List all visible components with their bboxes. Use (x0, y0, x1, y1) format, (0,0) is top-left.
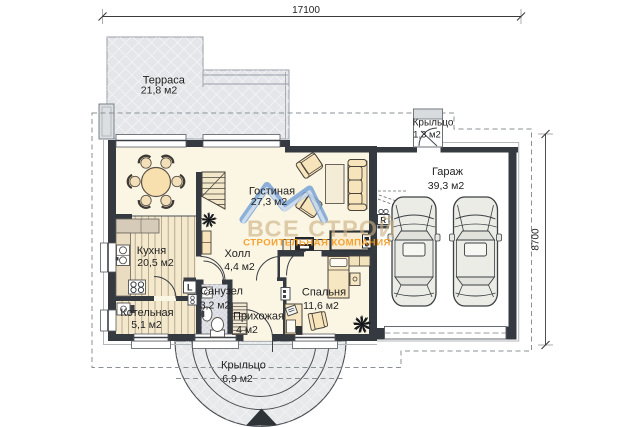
svg-text:Крыльцо: Крыльцо (413, 118, 454, 129)
svg-text:27,3 м2: 27,3 м2 (251, 196, 288, 208)
svg-text:20,5 м2: 20,5 м2 (137, 257, 174, 269)
svg-text:8700: 8700 (531, 228, 542, 251)
svg-text:Прихожая: Прихожая (233, 311, 284, 323)
svg-text:Холл: Холл (225, 248, 251, 260)
svg-text:11,6 м2: 11,6 м2 (303, 300, 339, 312)
svg-text:5,1 м2: 5,1 м2 (131, 319, 162, 331)
svg-text:L: L (187, 283, 193, 293)
svg-text:Санузел: Санузел (200, 286, 243, 298)
svg-text:17100: 17100 (292, 5, 320, 16)
svg-text:4,4 м2: 4,4 м2 (224, 261, 255, 273)
svg-text:Котельная: Котельная (120, 307, 173, 319)
svg-text:3,2 м2: 3,2 м2 (200, 300, 231, 312)
svg-text:Кухня: Кухня (137, 245, 166, 257)
svg-text:4 м2: 4 м2 (236, 324, 258, 336)
svg-text:Крыльцо: Крыльцо (221, 360, 266, 372)
svg-text:6,9 м2: 6,9 м2 (222, 373, 253, 385)
svg-text:39,3 м2: 39,3 м2 (428, 180, 465, 192)
svg-text:Спальня: Спальня (302, 287, 346, 299)
svg-text:СТРОИТЕЛЬНАЯ КОМПАНИЯ: СТРОИТЕЛЬНАЯ КОМПАНИЯ (243, 238, 391, 249)
svg-text:1,3 м2: 1,3 м2 (413, 130, 441, 141)
svg-text:Гараж: Гараж (432, 166, 464, 178)
svg-text:21,8 м2: 21,8 м2 (141, 85, 178, 97)
